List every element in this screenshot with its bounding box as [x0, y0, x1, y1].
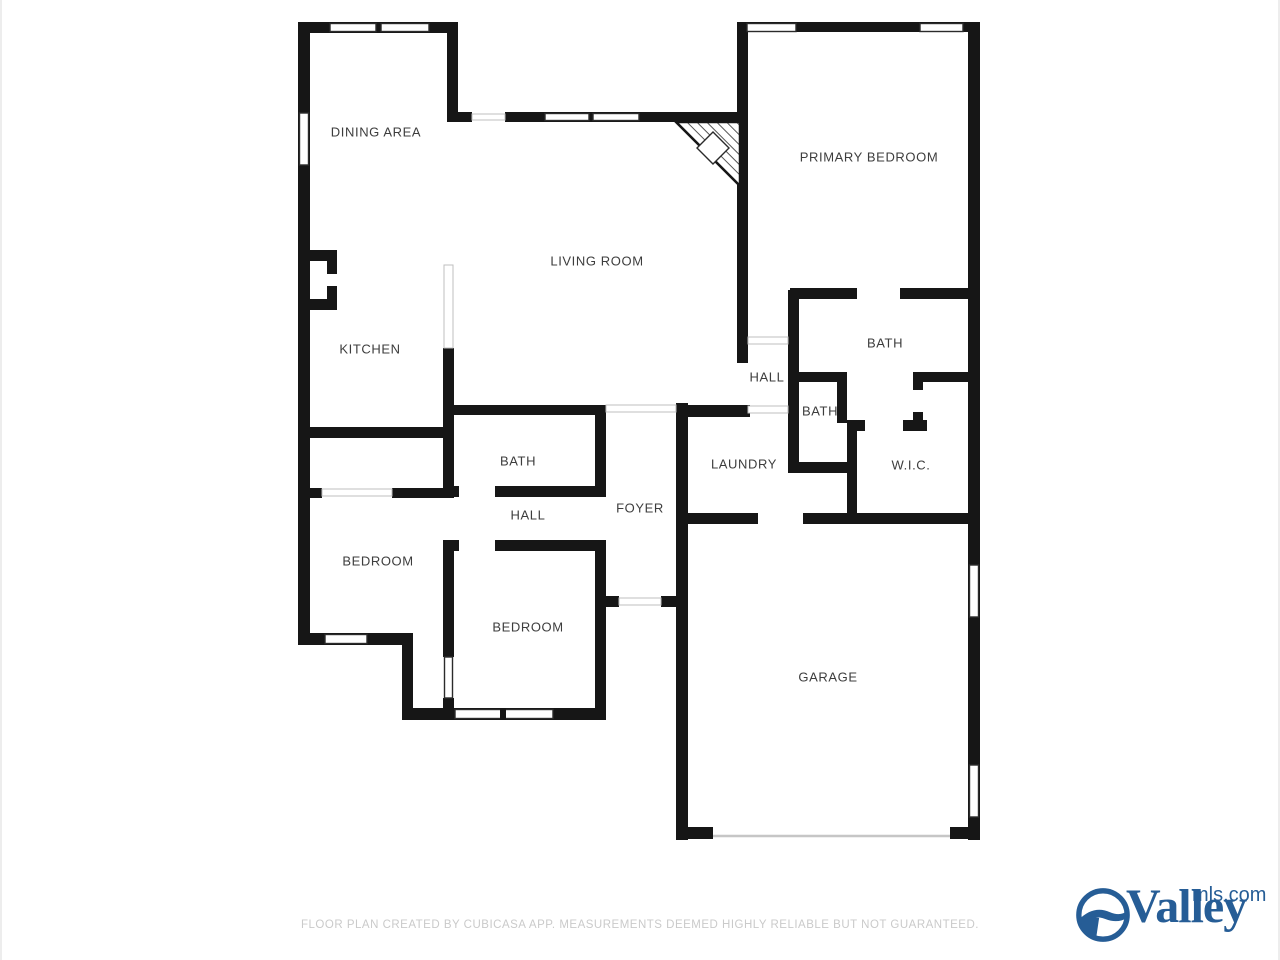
room-label-laundry: LAUNDRY: [711, 457, 777, 472]
fireplace-hatch: [676, 122, 740, 186]
room-label-bath-primary: BATH: [867, 336, 903, 351]
room-label-living-room: LIVING ROOM: [550, 254, 643, 269]
room-label-bath-small: BATH: [500, 454, 536, 469]
room-label-bath-hall: BATH: [802, 404, 838, 419]
room-label-dining-area: DINING AREA: [331, 125, 421, 140]
room-label-bedroom-left: BEDROOM: [342, 554, 413, 569]
room-label-wic: W.I.C.: [892, 458, 931, 473]
room-label-bedroom-bottom: BEDROOM: [492, 620, 563, 635]
openings: [322, 114, 788, 605]
room-label-foyer: FOYER: [616, 501, 664, 516]
valleymls-logo: Valley mls.com: [1074, 882, 1274, 948]
room-label-primary-bedroom: PRIMARY BEDROOM: [800, 150, 939, 165]
windows: [300, 24, 979, 818]
walls: [298, 22, 980, 840]
window-mullions: [500, 708, 506, 720]
room-label-kitchen: KITCHEN: [339, 342, 400, 357]
valleymls-logo-icon: [1074, 886, 1132, 944]
floorplan-svg: [0, 0, 1280, 960]
room-label-hall-lower: HALL: [511, 508, 546, 523]
logo-domain-text: mls.com: [1192, 884, 1266, 907]
room-label-garage: GARAGE: [798, 670, 857, 685]
room-label-hall-upper: HALL: [750, 370, 785, 385]
disclaimer-text: FLOOR PLAN CREATED BY CUBICASA APP. MEAS…: [250, 919, 1030, 931]
